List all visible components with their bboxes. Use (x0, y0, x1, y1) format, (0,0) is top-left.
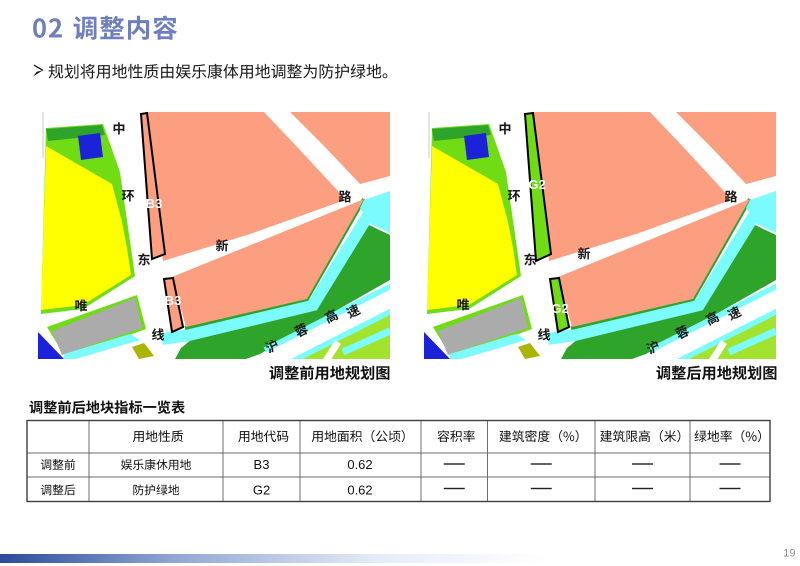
svg-text:G2: G2 (253, 483, 270, 498)
svg-text:B3: B3 (146, 196, 163, 211)
svg-text:0.62: 0.62 (347, 483, 372, 498)
svg-text:B3: B3 (165, 293, 182, 308)
svg-text:19: 19 (783, 548, 795, 560)
svg-text:B3: B3 (254, 457, 270, 472)
svg-text:G2: G2 (551, 301, 568, 316)
svg-text:G2: G2 (528, 177, 545, 192)
svg-text:0.62: 0.62 (347, 457, 372, 472)
